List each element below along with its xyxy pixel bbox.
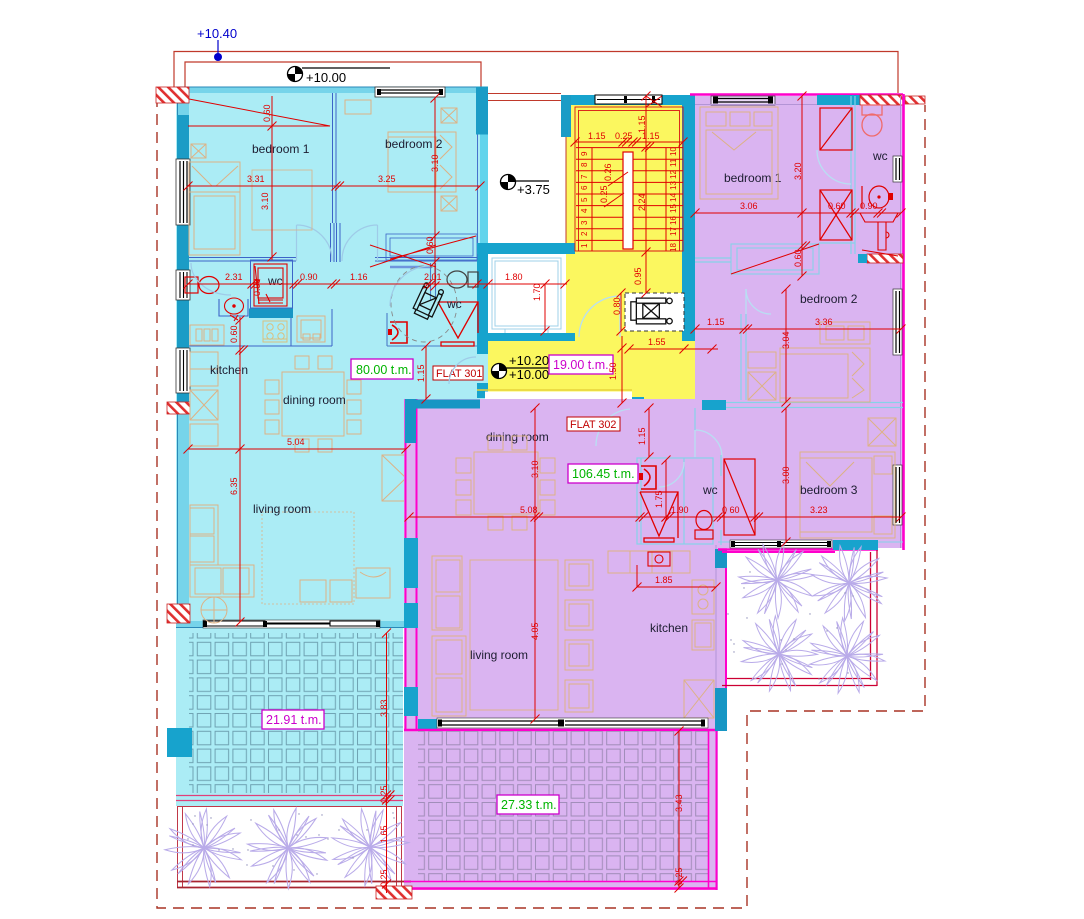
- svg-text:10: 10: [669, 147, 678, 156]
- svg-text:0.60: 0.60: [229, 325, 239, 343]
- svg-text:3.10: 3.10: [430, 154, 440, 172]
- svg-text:0.25: 0.25: [379, 785, 389, 803]
- svg-text:+10.00: +10.00: [509, 367, 549, 382]
- svg-text:5.04: 5.04: [287, 437, 305, 447]
- svg-text:wc: wc: [267, 274, 283, 288]
- svg-text:1.15: 1.15: [707, 317, 725, 327]
- svg-text:1.15: 1.15: [637, 115, 647, 133]
- svg-text:FLAT 302: FLAT 302: [570, 419, 616, 431]
- svg-text:bedroom 1: bedroom 1: [724, 171, 782, 185]
- svg-text:1.80: 1.80: [505, 272, 523, 282]
- svg-text:1.85: 1.85: [655, 575, 673, 585]
- svg-text:1.75: 1.75: [654, 490, 664, 508]
- svg-text:bedroom 2: bedroom 2: [800, 292, 858, 306]
- svg-text:0.60: 0.60: [828, 201, 846, 211]
- svg-text:0.60: 0.60: [793, 249, 803, 267]
- svg-text:dining room: dining room: [283, 393, 346, 407]
- svg-text:8: 8: [580, 162, 589, 167]
- svg-text:wc: wc: [872, 149, 888, 163]
- svg-text:1: 1: [580, 243, 589, 248]
- svg-text:1.65: 1.65: [379, 825, 389, 843]
- svg-text:0.25: 0.25: [599, 185, 609, 203]
- svg-text:3.43: 3.43: [674, 794, 684, 812]
- svg-text:3: 3: [580, 220, 589, 225]
- svg-text:17: 17: [669, 227, 678, 236]
- svg-text:3.31: 3.31: [247, 174, 265, 184]
- svg-text:1.15: 1.15: [588, 131, 606, 141]
- svg-text:5: 5: [580, 197, 589, 202]
- svg-text:3.23: 3.23: [810, 505, 828, 515]
- svg-text:0.25: 0.25: [674, 867, 684, 885]
- svg-text:1.50: 1.50: [608, 362, 618, 380]
- svg-text:2.31: 2.31: [225, 272, 243, 282]
- svg-text:3.20: 3.20: [793, 162, 803, 180]
- svg-text:kitchen: kitchen: [650, 621, 688, 635]
- svg-text:wc: wc: [702, 483, 718, 497]
- svg-text:0.25: 0.25: [379, 869, 389, 887]
- svg-text:1.15: 1.15: [637, 427, 647, 445]
- svg-text:+10.20: +10.20: [509, 353, 549, 368]
- svg-text:+10.00: +10.00: [306, 70, 346, 85]
- svg-text:15: 15: [669, 204, 678, 213]
- svg-text:3.10: 3.10: [530, 460, 540, 478]
- svg-text:16: 16: [669, 216, 678, 225]
- svg-text:11: 11: [669, 158, 678, 167]
- svg-text:2.01: 2.01: [424, 272, 442, 282]
- svg-text:3.36: 3.36: [815, 317, 833, 327]
- svg-text:12: 12: [669, 170, 678, 179]
- svg-text:0.99: 0.99: [252, 278, 262, 296]
- svg-text:0.25: 0.25: [615, 131, 633, 141]
- svg-text:19.00 t.m.: 19.00 t.m.: [553, 358, 609, 372]
- svg-text:3.04: 3.04: [781, 331, 791, 349]
- svg-text:living room: living room: [253, 502, 311, 516]
- svg-text:dining room: dining room: [486, 430, 549, 444]
- svg-text:0.90: 0.90: [860, 201, 878, 211]
- svg-text:1.70: 1.70: [532, 283, 542, 301]
- svg-text:0.80: 0.80: [612, 297, 622, 315]
- svg-text:106.45 t.m.: 106.45 t.m.: [572, 467, 635, 481]
- svg-text:5.08: 5.08: [520, 505, 538, 515]
- svg-text:4.05: 4.05: [530, 622, 540, 640]
- svg-text:6.35: 6.35: [229, 477, 239, 495]
- svg-text:0.60: 0.60: [262, 104, 272, 122]
- svg-text:2.24: 2.24: [637, 193, 647, 211]
- svg-text:80.00 t.m.: 80.00 t.m.: [356, 363, 412, 377]
- svg-text:27.33 t.m.: 27.33 t.m.: [501, 798, 557, 812]
- svg-text:0.26: 0.26: [603, 163, 613, 181]
- svg-text:1.15: 1.15: [416, 364, 426, 382]
- svg-text:1.55: 1.55: [648, 337, 666, 347]
- svg-text:18: 18: [669, 243, 678, 252]
- svg-text:13: 13: [669, 181, 678, 190]
- svg-text:bedroom 1: bedroom 1: [252, 142, 310, 156]
- svg-text:6: 6: [580, 185, 589, 190]
- svg-text:3.06: 3.06: [740, 201, 758, 211]
- svg-text:wc: wc: [446, 297, 462, 311]
- svg-text:14: 14: [669, 193, 678, 202]
- svg-text:bedroom 2: bedroom 2: [385, 137, 443, 151]
- svg-text:3.10: 3.10: [260, 192, 270, 210]
- svg-text:2: 2: [580, 231, 589, 236]
- svg-text:0.90: 0.90: [300, 272, 318, 282]
- svg-text:+10.40: +10.40: [197, 26, 237, 41]
- svg-text:living room: living room: [470, 648, 528, 662]
- svg-text:FLAT 301: FLAT 301: [436, 368, 482, 380]
- svg-text:3.83: 3.83: [379, 699, 389, 717]
- svg-text:kitchen: kitchen: [210, 363, 248, 377]
- svg-text:9: 9: [580, 151, 589, 156]
- svg-text:7: 7: [580, 174, 589, 179]
- svg-text:+3.75: +3.75: [517, 182, 550, 197]
- svg-text:4: 4: [580, 208, 589, 213]
- svg-text:0.60: 0.60: [425, 236, 435, 254]
- svg-text:3.25: 3.25: [378, 174, 396, 184]
- svg-text:21.91 t.m.: 21.91 t.m.: [266, 713, 322, 727]
- svg-text:1.16: 1.16: [350, 272, 368, 282]
- svg-text:0.95: 0.95: [633, 267, 643, 285]
- svg-text:3.00: 3.00: [781, 466, 791, 484]
